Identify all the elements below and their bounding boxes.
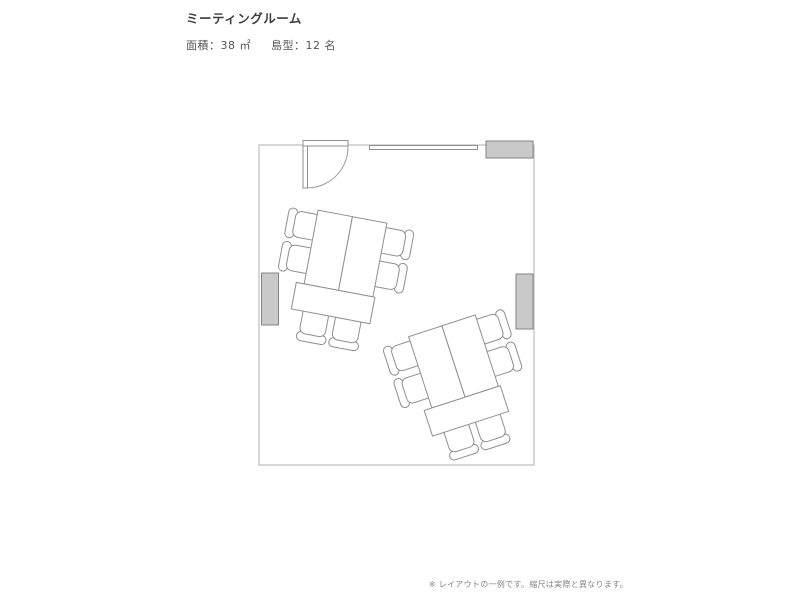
floorplan-diagram [0,0,800,600]
door-lintel [303,141,348,147]
cabinet-left [262,273,279,325]
whiteboard [370,146,478,150]
disclaimer-note: ※ レイアウトの一例です。縮尺は実際と異なります。 [429,579,628,590]
door-leaf [303,146,308,188]
cabinet-right [516,274,533,329]
cabinet-top-right [486,141,533,158]
